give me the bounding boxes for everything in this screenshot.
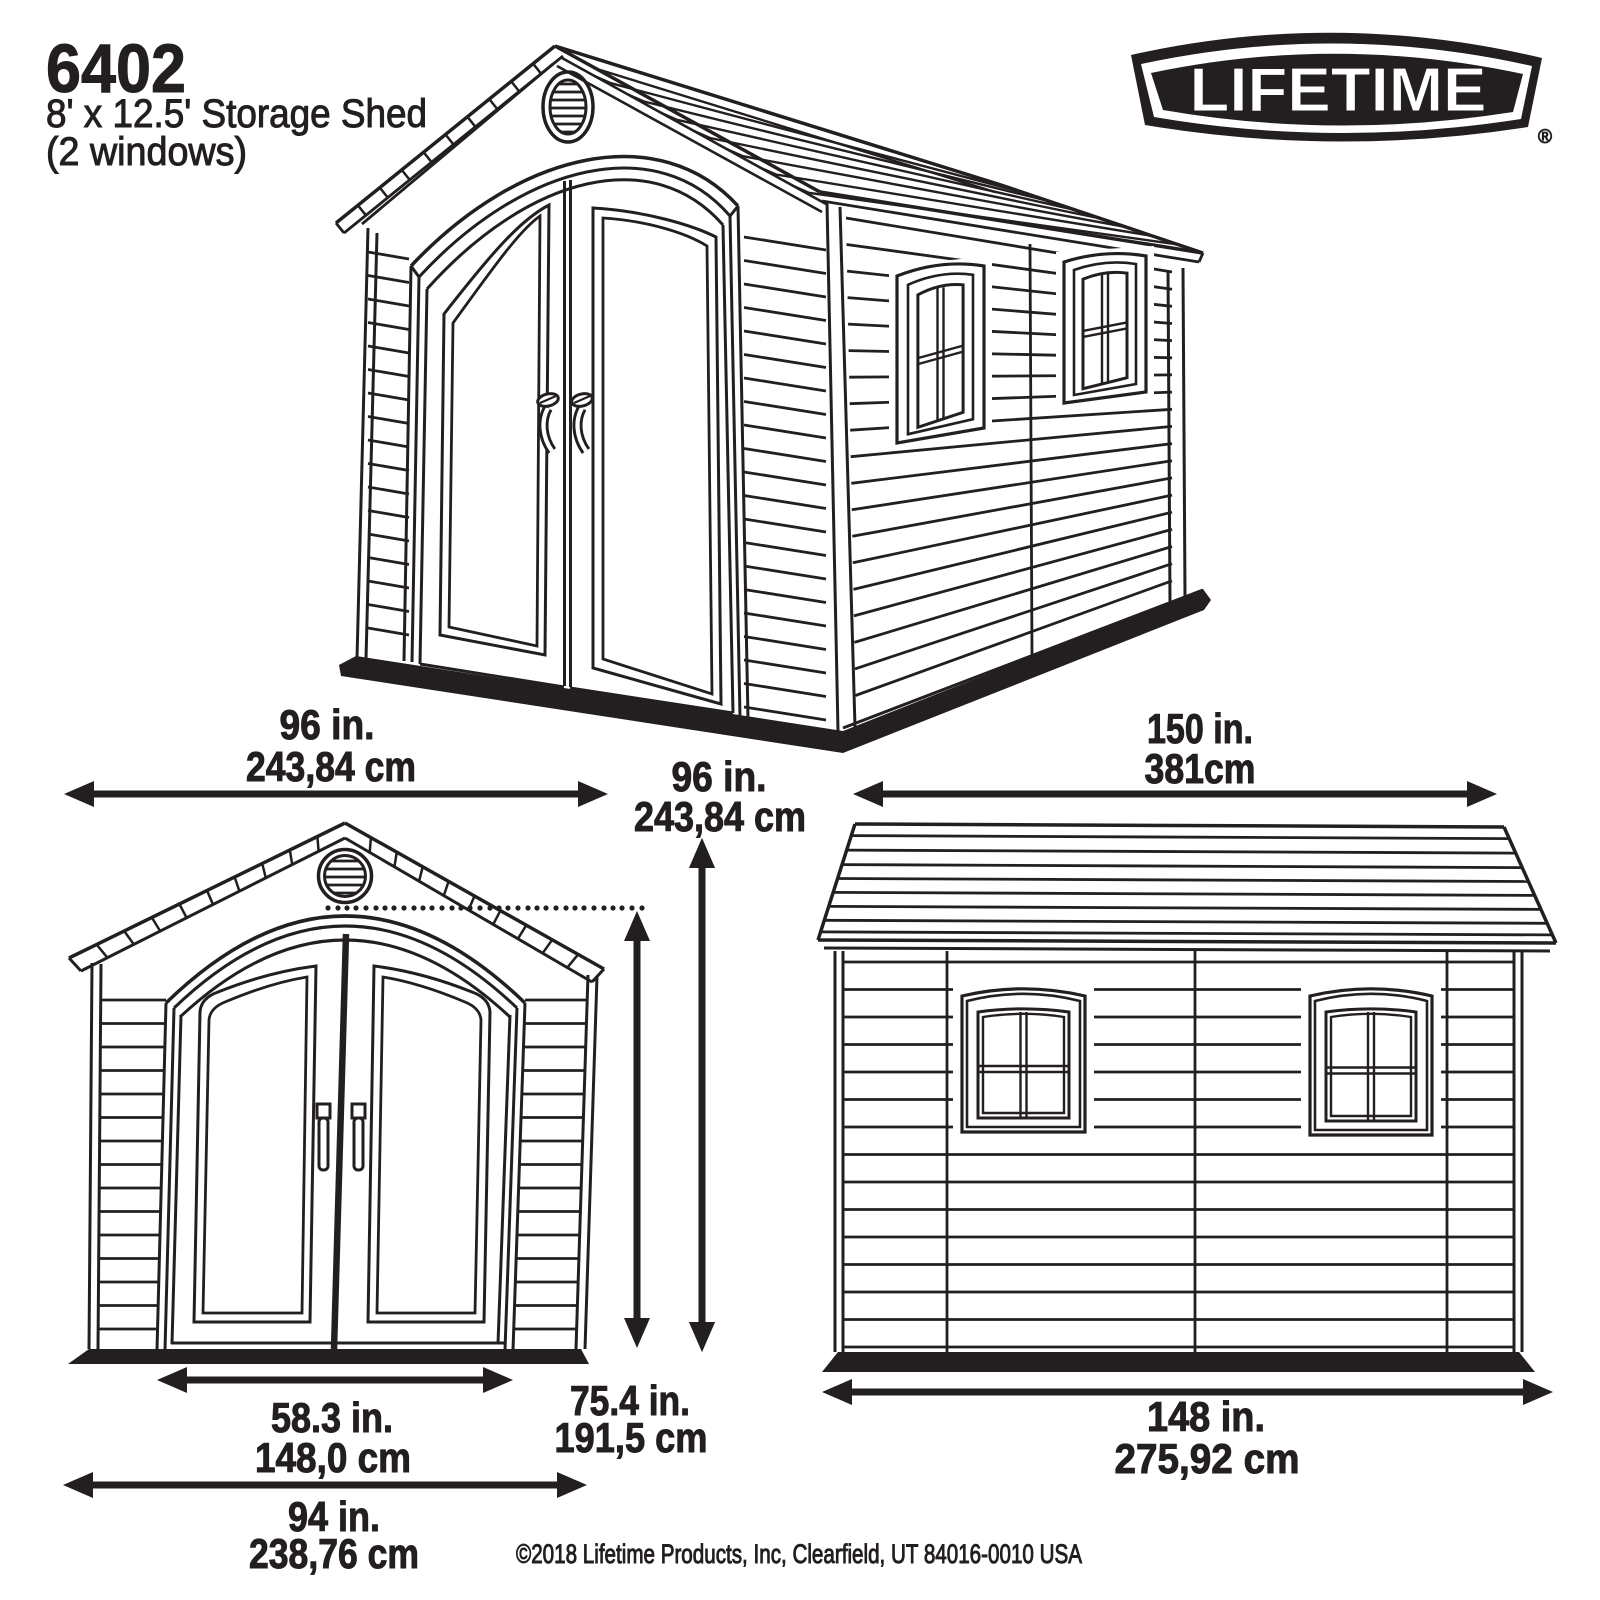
svg-text:243,84 cm: 243,84 cm [634,793,806,840]
svg-text:191,5 cm: 191,5 cm [555,1414,708,1461]
svg-text:243,84 cm: 243,84 cm [246,743,416,790]
svg-text:©2018 Lifetime Products, Inc,: ©2018 Lifetime Products, Inc, Clearfield… [516,1539,1082,1569]
svg-text:®: ® [1538,127,1552,148]
svg-text:381cm: 381cm [1145,745,1256,792]
svg-text:275,92 cm: 275,92 cm [1115,1435,1300,1482]
svg-text:96 in.: 96 in. [280,701,375,748]
svg-text:148,0 cm: 148,0 cm [255,1434,411,1481]
svg-text:LIFETIME: LIFETIME [1190,56,1487,125]
svg-text:148 in.: 148 in. [1147,1393,1265,1440]
svg-text:238,76 cm: 238,76 cm [249,1530,419,1577]
svg-text:(2 windows): (2 windows) [46,130,247,174]
